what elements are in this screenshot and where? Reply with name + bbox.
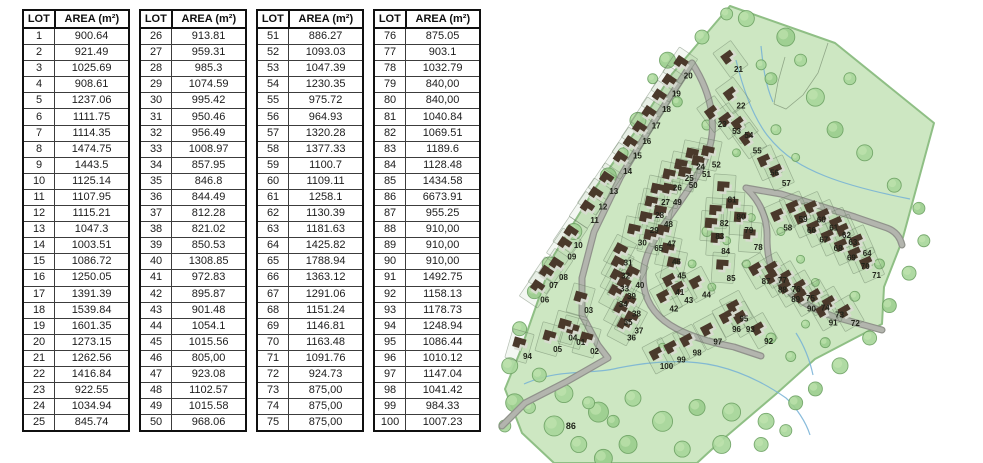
lot-number-cell: 25 bbox=[23, 415, 55, 432]
lot-number-label: 63 bbox=[848, 238, 857, 247]
lot-number-cell: 35 bbox=[140, 173, 172, 189]
lot-number-cell: 27 bbox=[140, 45, 172, 61]
lot-number-label: 27 bbox=[661, 198, 670, 207]
lot-number-cell: 75 bbox=[257, 415, 289, 432]
lot-area-cell: 1091.76 bbox=[289, 350, 363, 366]
lot-number-cell: 39 bbox=[140, 238, 172, 254]
lot-area-cell: 955.25 bbox=[406, 206, 480, 222]
lot-area-cell: 1003.51 bbox=[55, 238, 129, 254]
table-row: 4908.61 bbox=[23, 77, 129, 93]
lot-area-cell: 1010.12 bbox=[406, 350, 480, 366]
tree-icon bbox=[532, 368, 546, 382]
lot-number-cell: 28 bbox=[140, 61, 172, 77]
table-row: 661363.12 bbox=[257, 270, 363, 286]
lot-number-label: 30 bbox=[638, 239, 647, 248]
table-row: 43901.48 bbox=[140, 302, 246, 318]
lot-number-label: 100 bbox=[660, 362, 674, 371]
lot-number-cell: 60 bbox=[257, 173, 289, 189]
tree-icon bbox=[765, 73, 777, 85]
table-row: 971147.04 bbox=[374, 366, 480, 382]
table-row: 131047.3 bbox=[23, 222, 129, 238]
area-column-header: AREA (m²) bbox=[406, 10, 480, 28]
lot-number-cell: 80 bbox=[374, 93, 406, 109]
table-row: 221416.84 bbox=[23, 366, 129, 382]
lot-area-cell: 1273.15 bbox=[55, 334, 129, 350]
lot-number-label: 03 bbox=[584, 306, 593, 315]
lot-area-cell: 1158.13 bbox=[406, 286, 480, 302]
lot-number-label: 44 bbox=[702, 290, 711, 299]
lot-area-cell: 1147.04 bbox=[406, 366, 480, 382]
lot-number-cell: 69 bbox=[257, 318, 289, 334]
tree-icon bbox=[738, 11, 754, 27]
lot-number-cell: 5 bbox=[23, 93, 55, 109]
tree-icon bbox=[583, 397, 595, 409]
tree-icon bbox=[832, 358, 848, 374]
lot-area-cell: 1114.35 bbox=[55, 125, 129, 141]
table-row: 34857.95 bbox=[140, 157, 246, 173]
table-row: 41972.83 bbox=[140, 270, 246, 286]
area-column-header: AREA (m²) bbox=[55, 10, 129, 28]
lot-area-cell: 1151.24 bbox=[289, 302, 363, 318]
lot-area-cell: 985.3 bbox=[172, 61, 246, 77]
lot-number-label: 06 bbox=[540, 296, 549, 305]
lot-area-cell: 1443.5 bbox=[55, 157, 129, 173]
table-row: 481102.57 bbox=[140, 383, 246, 399]
table-row: 711091.76 bbox=[257, 350, 363, 366]
tree-icon bbox=[713, 435, 731, 453]
table-row: 121115.21 bbox=[23, 206, 129, 222]
table-row: 241034.94 bbox=[23, 399, 129, 415]
table-row: 32956.49 bbox=[140, 125, 246, 141]
lot-number-label: 12 bbox=[598, 202, 607, 211]
table-row: 781032.79 bbox=[374, 61, 480, 77]
tree-icon bbox=[733, 149, 741, 157]
lot-area-cell: 1474.75 bbox=[55, 141, 129, 157]
tree-icon bbox=[887, 178, 901, 192]
lot-area-cell: 1262.56 bbox=[55, 350, 129, 366]
tree-icon bbox=[689, 399, 705, 415]
lot-area-cell: 1125.14 bbox=[55, 173, 129, 189]
table-row: 641425.82 bbox=[257, 238, 363, 254]
table-row: 28985.3 bbox=[140, 61, 246, 77]
lot-number-cell: 73 bbox=[257, 383, 289, 399]
lot-number-cell: 54 bbox=[257, 77, 289, 93]
lot-number-cell: 79 bbox=[374, 77, 406, 93]
tree-icon bbox=[754, 437, 768, 451]
lot-number-cell: 52 bbox=[257, 45, 289, 61]
lot-number-label: 98 bbox=[693, 348, 702, 357]
lot-area-cell: 1115.21 bbox=[55, 206, 129, 222]
table-row: 31950.46 bbox=[140, 109, 246, 125]
lot-area-cell: 1107.95 bbox=[55, 189, 129, 205]
lot-area-cell: 1086.72 bbox=[55, 254, 129, 270]
lot-number-cell: 65 bbox=[257, 254, 289, 270]
lot-column-header: LOT bbox=[257, 10, 289, 28]
table-header-row: LOTAREA (m²) bbox=[374, 10, 480, 28]
lot-number-cell: 10 bbox=[23, 173, 55, 189]
table-row: 55975.72 bbox=[257, 93, 363, 109]
table-row: 88910,00 bbox=[374, 222, 480, 238]
lot-number-cell: 1 bbox=[23, 28, 55, 45]
lot-number-cell: 68 bbox=[257, 302, 289, 318]
lot-number-cell: 66 bbox=[257, 270, 289, 286]
lot-number-cell: 31 bbox=[140, 109, 172, 125]
lot-number-cell: 16 bbox=[23, 270, 55, 286]
lot-number-cell: 82 bbox=[374, 125, 406, 141]
lot-number-cell: 78 bbox=[374, 61, 406, 77]
lot-area-cell: 1034.94 bbox=[55, 399, 129, 415]
lot-number-cell: 86 bbox=[374, 189, 406, 205]
table-row: 99984.33 bbox=[374, 399, 480, 415]
lot-number-label: 08 bbox=[559, 273, 568, 282]
lot-area-cell: 1100.7 bbox=[289, 157, 363, 173]
lot-area-cell: 975.72 bbox=[289, 93, 363, 109]
table-row: 171391.39 bbox=[23, 286, 129, 302]
lot-number-label: 13 bbox=[609, 187, 618, 196]
lot-number-label: 53 bbox=[732, 127, 741, 136]
table-row: 201273.15 bbox=[23, 334, 129, 350]
lot-number-label: 79 bbox=[744, 226, 753, 235]
lot-number-cell: 40 bbox=[140, 254, 172, 270]
lot-number-label: 76 bbox=[792, 285, 801, 294]
table-row: 61111.75 bbox=[23, 109, 129, 125]
lot-area-cell: 1111.75 bbox=[55, 109, 129, 125]
table-row: 681151.24 bbox=[257, 302, 363, 318]
table-row: 35846.8 bbox=[140, 173, 246, 189]
lot-area-table: LOTAREA (m²)26913.8127959.3128985.329107… bbox=[139, 9, 247, 432]
lot-area-cell: 910,00 bbox=[406, 222, 480, 238]
lot-number-label: 61 bbox=[829, 223, 838, 232]
lot-number-label: 34 bbox=[619, 300, 628, 309]
table-row: 27959.31 bbox=[140, 45, 246, 61]
lot-number-cell: 81 bbox=[374, 109, 406, 125]
lot-number-cell: 67 bbox=[257, 286, 289, 302]
lot-area-table: LOTAREA (m²)51886.27521093.03531047.3954… bbox=[256, 9, 364, 432]
lot-number-label: 78 bbox=[754, 243, 763, 252]
lot-area-cell: 959.31 bbox=[172, 45, 246, 61]
lot-number-label: 67 bbox=[819, 235, 828, 244]
table-header-row: LOTAREA (m²) bbox=[23, 10, 129, 28]
table-row: 30995.42 bbox=[140, 93, 246, 109]
lot-area-cell: 908.61 bbox=[55, 77, 129, 93]
table-row: 841128.48 bbox=[374, 157, 480, 173]
lot-number-label: 35 bbox=[624, 318, 633, 327]
lot-number-cell: 46 bbox=[140, 350, 172, 366]
table-row: 76875.05 bbox=[374, 28, 480, 45]
tree-icon bbox=[802, 320, 810, 328]
lot-number-label: 60 bbox=[817, 215, 826, 224]
lot-number-label: 56 bbox=[770, 169, 779, 178]
lot-area-cell: 1086.44 bbox=[406, 334, 480, 350]
table-row: 811040.84 bbox=[374, 109, 480, 125]
lot-number-label: 28 bbox=[655, 211, 664, 220]
tree-icon bbox=[780, 425, 792, 437]
table-row: 25845.74 bbox=[23, 415, 129, 432]
table-row: 36844.49 bbox=[140, 189, 246, 205]
lot-area-cell: 1007.23 bbox=[406, 415, 480, 432]
table-row: 81474.75 bbox=[23, 141, 129, 157]
table-row: 23922.55 bbox=[23, 383, 129, 399]
lot-number-cell: 51 bbox=[257, 28, 289, 45]
lot-number-label: 26 bbox=[673, 184, 682, 193]
table-row: 621130.39 bbox=[257, 206, 363, 222]
lot-area-cell: 910,00 bbox=[406, 254, 480, 270]
lot-number-label: 21 bbox=[734, 65, 743, 74]
lot-area-cell: 901.48 bbox=[172, 302, 246, 318]
tree-icon bbox=[918, 235, 930, 247]
lot-number-label: 86 bbox=[566, 421, 576, 431]
lot-number-cell: 8 bbox=[23, 141, 55, 157]
lot-number-label: 37 bbox=[634, 327, 643, 336]
lot-number-cell: 93 bbox=[374, 302, 406, 318]
table-row: 90910,00 bbox=[374, 254, 480, 270]
lot-area-cell: 875,00 bbox=[289, 399, 363, 415]
lot-number-cell: 98 bbox=[374, 383, 406, 399]
lot-number-cell: 29 bbox=[140, 77, 172, 93]
table-row: 161250.05 bbox=[23, 270, 129, 286]
lot-area-cell: 910,00 bbox=[406, 238, 480, 254]
tree-icon bbox=[756, 60, 766, 70]
table-row: 80840,00 bbox=[374, 93, 480, 109]
lot-number-cell: 84 bbox=[374, 157, 406, 173]
lot-number-cell: 58 bbox=[257, 141, 289, 157]
lot-area-cell: 1047.3 bbox=[55, 222, 129, 238]
lot-number-cell: 6 bbox=[23, 109, 55, 125]
lot-area-cell: 1320.28 bbox=[289, 125, 363, 141]
tree-icon bbox=[695, 30, 709, 44]
lot-area-cell: 903.1 bbox=[406, 45, 480, 61]
lot-number-label: 69 bbox=[847, 253, 856, 262]
lot-area-cell: 1025.69 bbox=[55, 61, 129, 77]
table-header-row: LOTAREA (m²) bbox=[257, 10, 363, 28]
table-row: 79840,00 bbox=[374, 77, 480, 93]
lot-number-cell: 24 bbox=[23, 399, 55, 415]
tree-icon bbox=[792, 153, 800, 161]
tree-icon bbox=[789, 396, 803, 410]
lot-number-label: 04 bbox=[568, 334, 577, 343]
lot-area-cell: 6673.91 bbox=[406, 189, 480, 205]
lot-area-cell: 913.81 bbox=[172, 28, 246, 45]
lot-number-label: 82 bbox=[720, 219, 729, 228]
tree-icon bbox=[857, 145, 873, 161]
tree-icon bbox=[827, 122, 843, 138]
table-row: 151086.72 bbox=[23, 254, 129, 270]
lot-number-label: 66 bbox=[807, 226, 816, 235]
lot-number-label: 20 bbox=[684, 71, 693, 80]
tree-icon bbox=[771, 125, 781, 135]
lot-number-label: 45 bbox=[677, 271, 686, 280]
table-row: 51886.27 bbox=[257, 28, 363, 45]
lot-area-cell: 972.83 bbox=[172, 270, 246, 286]
table-row: 601109.11 bbox=[257, 173, 363, 189]
tree-icon bbox=[674, 441, 690, 457]
lot-area-cell: 875,00 bbox=[289, 383, 363, 399]
lot-number-cell: 77 bbox=[374, 45, 406, 61]
table-row: 541230.35 bbox=[257, 77, 363, 93]
lot-area-cell: 1128.48 bbox=[406, 157, 480, 173]
lot-number-cell: 90 bbox=[374, 254, 406, 270]
tree-icon bbox=[721, 8, 733, 20]
lot-number-label: 92 bbox=[764, 337, 773, 346]
table-row: 89910,00 bbox=[374, 238, 480, 254]
lot-area-cell: 964.93 bbox=[289, 109, 363, 125]
lot-area-cell: 921.49 bbox=[55, 45, 129, 61]
lot-number-label: 95 bbox=[739, 315, 748, 324]
lot-area-table: LOTAREA (m²)1900.642921.4931025.694908.6… bbox=[22, 9, 130, 432]
tree-icon bbox=[795, 54, 807, 66]
lot-number-cell: 37 bbox=[140, 206, 172, 222]
table-row: 38821.02 bbox=[140, 222, 246, 238]
lot-area-cell: 1391.39 bbox=[55, 286, 129, 302]
lot-number-cell: 49 bbox=[140, 399, 172, 415]
lot-area-cell: 1047.39 bbox=[289, 61, 363, 77]
lot-number-cell: 32 bbox=[140, 125, 172, 141]
lot-number-cell: 45 bbox=[140, 334, 172, 350]
table-row: 75875,00 bbox=[257, 415, 363, 432]
table-row: 401308.85 bbox=[140, 254, 246, 270]
lot-area-cell: 900.64 bbox=[55, 28, 129, 45]
lot-number-cell: 44 bbox=[140, 318, 172, 334]
lot-area-cell: 850.53 bbox=[172, 238, 246, 254]
lot-area-tables: LOTAREA (m²)1900.642921.4931025.694908.6… bbox=[22, 9, 481, 432]
lot-number-cell: 95 bbox=[374, 334, 406, 350]
lot-area-cell: 1492.75 bbox=[406, 270, 480, 286]
lot-area-cell: 956.49 bbox=[172, 125, 246, 141]
table-row: 651788.94 bbox=[257, 254, 363, 270]
lot-area-cell: 1008.97 bbox=[172, 141, 246, 157]
table-row: 441054.1 bbox=[140, 318, 246, 334]
table-row: 831189.6 bbox=[374, 141, 480, 157]
area-column-header: AREA (m²) bbox=[172, 10, 246, 28]
lot-area-cell: 1074.59 bbox=[172, 77, 246, 93]
tree-icon bbox=[688, 260, 696, 268]
lot-number-label: 94 bbox=[523, 352, 532, 361]
lot-number-cell: 3 bbox=[23, 61, 55, 77]
lot-number-label: 87 bbox=[762, 277, 771, 286]
table-row: 611258.1 bbox=[257, 189, 363, 205]
lot-number-label: 91 bbox=[829, 319, 838, 328]
lot-number-label: 52 bbox=[712, 160, 721, 169]
lot-number-cell: 61 bbox=[257, 189, 289, 205]
lot-number-label: 80 bbox=[737, 213, 746, 222]
table-row: 91443.5 bbox=[23, 157, 129, 173]
lot-number-label: 07 bbox=[549, 281, 558, 290]
lot-area-cell: 1189.6 bbox=[406, 141, 480, 157]
lot-number-label: 71 bbox=[872, 271, 881, 280]
lot-number-cell: 47 bbox=[140, 366, 172, 382]
lot-area-cell: 1230.35 bbox=[289, 77, 363, 93]
lot-area-cell: 1308.85 bbox=[172, 254, 246, 270]
lot-area-table: LOTAREA (m²)76875.0577903.1781032.797984… bbox=[373, 9, 481, 432]
lot-number-cell: 88 bbox=[374, 222, 406, 238]
lot-number-cell: 38 bbox=[140, 222, 172, 238]
lot-number-label: 90 bbox=[807, 304, 816, 313]
tree-icon bbox=[594, 449, 612, 463]
lot-number-label: 38 bbox=[632, 309, 641, 318]
lot-number-label: 50 bbox=[689, 181, 698, 190]
lot-number-cell: 76 bbox=[374, 28, 406, 45]
site-plan-map: 0102030405060708091011121314151617181920… bbox=[490, 0, 983, 463]
lot-number-label: 16 bbox=[642, 137, 651, 146]
lot-number-label: 65 bbox=[654, 244, 663, 253]
table-row: 291074.59 bbox=[140, 77, 246, 93]
lot-area-cell: 1040.84 bbox=[406, 109, 480, 125]
tree-icon bbox=[607, 415, 619, 427]
lot-number-label: 58 bbox=[783, 223, 792, 232]
table-row: 691146.81 bbox=[257, 318, 363, 334]
lot-area-cell: 924.73 bbox=[289, 366, 363, 382]
table-row: 26913.81 bbox=[140, 28, 246, 45]
lot-area-cell: 1363.12 bbox=[289, 270, 363, 286]
lot-number-cell: 33 bbox=[140, 141, 172, 157]
lot-number-cell: 14 bbox=[23, 238, 55, 254]
table-row: 51237.06 bbox=[23, 93, 129, 109]
lot-number-label: 74 bbox=[821, 303, 830, 312]
lot-number-label: 22 bbox=[737, 102, 746, 111]
lot-number-label: 32 bbox=[621, 271, 630, 280]
lot-number-cell: 53 bbox=[257, 61, 289, 77]
lot-number-cell: 59 bbox=[257, 157, 289, 173]
table-row: 74875,00 bbox=[257, 399, 363, 415]
lot-area-cell: 1237.06 bbox=[55, 93, 129, 109]
lot-area-cell: 857.95 bbox=[172, 157, 246, 173]
table-row: 72924.73 bbox=[257, 366, 363, 382]
lot-number-cell: 30 bbox=[140, 93, 172, 109]
table-row: 581377.33 bbox=[257, 141, 363, 157]
lot-number-label: 77 bbox=[778, 276, 787, 285]
lot-number-label: 31 bbox=[624, 259, 633, 268]
table-row: 77903.1 bbox=[374, 45, 480, 61]
table-header-row: LOTAREA (m²) bbox=[140, 10, 246, 28]
lot-number-label: 89 bbox=[791, 295, 800, 304]
table-row: 42895.87 bbox=[140, 286, 246, 302]
table-row: 851434.58 bbox=[374, 173, 480, 189]
lot-area-cell: 922.55 bbox=[55, 383, 129, 399]
lot-number-cell: 11 bbox=[23, 189, 55, 205]
lot-number-cell: 18 bbox=[23, 302, 55, 318]
lot-area-cell: 895.87 bbox=[172, 286, 246, 302]
lot-area-cell: 1258.1 bbox=[289, 189, 363, 205]
lot-number-label: 93 bbox=[746, 325, 755, 334]
lot-area-cell: 840,00 bbox=[406, 93, 480, 109]
tree-icon bbox=[723, 403, 741, 421]
lot-area-cell: 1146.81 bbox=[289, 318, 363, 334]
tree-icon bbox=[653, 411, 673, 431]
lot-number-cell: 64 bbox=[257, 238, 289, 254]
table-row: 87955.25 bbox=[374, 206, 480, 222]
lot-area-cell: 845.74 bbox=[55, 415, 129, 432]
tree-icon bbox=[797, 255, 805, 263]
lot-area-cell: 995.42 bbox=[172, 93, 246, 109]
lot-area-cell: 840,00 bbox=[406, 77, 480, 93]
table-row: 961010.12 bbox=[374, 350, 480, 366]
lot-area-cell: 1069.51 bbox=[406, 125, 480, 141]
lot-number-cell: 9 bbox=[23, 157, 55, 173]
lot-number-cell: 12 bbox=[23, 206, 55, 222]
lot-area-cell: 1377.33 bbox=[289, 141, 363, 157]
lot-number-label: 99 bbox=[677, 355, 686, 364]
lot-area-cell: 1109.11 bbox=[289, 173, 363, 189]
lot-area-cell: 984.33 bbox=[406, 399, 480, 415]
lot-number-label: 18 bbox=[662, 105, 671, 114]
lot-area-cell: 1788.94 bbox=[289, 254, 363, 270]
lot-area-cell: 1102.57 bbox=[172, 383, 246, 399]
lot-number-label: 51 bbox=[702, 170, 711, 179]
lot-number-cell: 56 bbox=[257, 109, 289, 125]
table-row: 71114.35 bbox=[23, 125, 129, 141]
site-plan-svg: 0102030405060708091011121314151617181920… bbox=[490, 0, 983, 463]
lot-number-label: 46 bbox=[672, 258, 681, 267]
